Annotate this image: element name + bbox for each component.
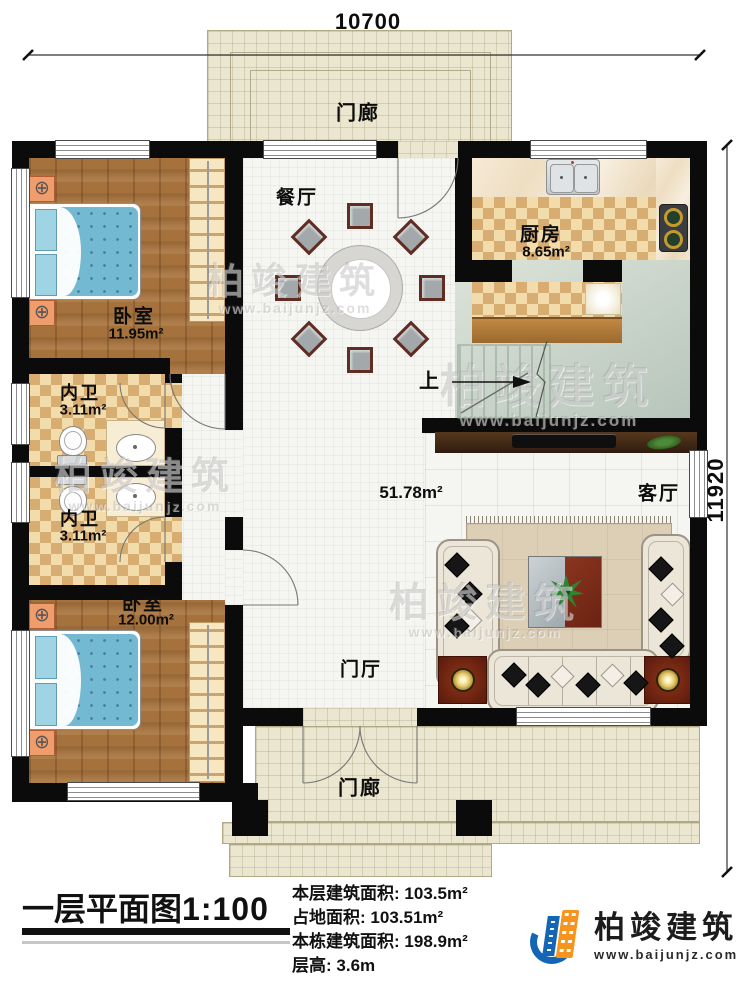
page-title-scale: 1:100: [182, 891, 269, 927]
nightstand-lamp-icon: ⊕: [29, 300, 55, 326]
door-opening: [398, 141, 458, 158]
porch-bottom-step2: [229, 844, 492, 877]
label-dining: 餐厅: [276, 183, 318, 210]
watermark: 柏竣建筑 www.baijunjz.com: [398, 362, 698, 430]
label-bedroom1-area: 11.95m²: [108, 326, 163, 343]
tv-cabinet-icon: [435, 432, 697, 453]
label-stairs-up: 上: [419, 365, 441, 394]
title-underline-thin: [22, 941, 290, 944]
window-icon: [530, 140, 647, 159]
dimension-right: 11920: [703, 458, 729, 523]
window-icon: [11, 168, 30, 298]
nightstand-lamp-icon: ⊕: [29, 603, 55, 629]
wall-wing-vertical: [225, 605, 243, 802]
stat-line: 占地面积: 103.51m²: [292, 906, 468, 930]
footer: 一层平面图1:100 本层建筑面积: 103.5m² 占地面积: 103.51m…: [0, 878, 750, 983]
door-opening: [303, 708, 417, 726]
nightstand-lamp-icon: ⊕: [29, 176, 55, 202]
wall-kitchen-bottom: [583, 260, 622, 282]
brand-logo: 柏竣建筑 www.baijunjz.com: [532, 908, 738, 966]
dining-chair-icon: [347, 347, 373, 373]
label-open-area: 51.78m²: [379, 483, 442, 503]
wall-bath-right: [165, 374, 182, 383]
page-title: 一层平面图1:100: [22, 884, 269, 930]
window-icon: [11, 383, 30, 445]
dining-chair-icon: [347, 203, 373, 229]
tv-icon: [512, 434, 616, 448]
porch-column-left: [232, 800, 268, 836]
window-icon: [55, 140, 150, 159]
stat-line: 层高: 3.6m: [292, 954, 468, 978]
bed-icon: [29, 630, 141, 730]
window-icon: [67, 782, 200, 801]
floor-plan-page: ⊕ ⊕ ⊕ ⊕: [0, 0, 750, 983]
label-bath1-area: 3.11m²: [60, 402, 107, 419]
end-table-lamp-icon: [644, 656, 692, 704]
kitchen-sink-icon: [546, 159, 600, 195]
wall-wing-vertical: [225, 517, 243, 550]
stats-block: 本层建筑面积: 103.5m² 占地面积: 103.51m² 本栋建筑面积: 1…: [292, 882, 468, 978]
label-bath2-area: 3.11m²: [60, 528, 107, 545]
label-kitchen: 厨房: [520, 220, 562, 247]
stat-line: 本层建筑面积: 103.5m²: [292, 882, 468, 906]
label-bedroom1: 卧室: [113, 302, 155, 329]
kitchen-nook-counter: [472, 317, 622, 343]
title-underline-thick: [22, 928, 290, 935]
page-title-text: 一层平面图: [22, 891, 182, 927]
brand-logo-icon: [532, 908, 586, 966]
fridge-icon: [585, 283, 621, 315]
door-opening: [225, 550, 243, 605]
wall-bedroom1-bottom: [12, 358, 170, 374]
nightstand-lamp-icon: ⊕: [29, 730, 55, 756]
watermark: 柏竣建筑 www.baijunjz.com: [185, 262, 405, 316]
window-icon: [11, 630, 30, 757]
watermark: 柏竣建筑 www.baijunjz.com: [350, 582, 620, 640]
stove-icon: [659, 204, 688, 252]
label-living: 客厅: [638, 479, 680, 506]
stat-line: 本栋建筑面积: 198.9m²: [292, 930, 468, 954]
label-porch-bottom: 门廊: [338, 772, 382, 801]
brand-site: www.baijunjz.com: [594, 947, 738, 962]
dining-chair-icon: [419, 275, 445, 301]
label-kitchen-area: 8.65m²: [522, 244, 570, 261]
label-bedroom2-area: 12.00m²: [118, 612, 174, 629]
window-icon: [263, 140, 377, 159]
dimension-top: 10700: [335, 9, 401, 35]
bed-icon: [29, 203, 141, 300]
label-porch-top: 门廊: [336, 97, 380, 126]
brand-name: 柏竣建筑: [594, 912, 738, 945]
porch-column-right: [456, 800, 492, 836]
label-foyer: 门厅: [340, 655, 382, 682]
end-table-lamp-icon: [438, 656, 487, 704]
wall-kitchen-bottom: [455, 260, 512, 282]
plant-decor-icon: [646, 434, 681, 452]
window-icon: [516, 707, 651, 726]
wardrobe-icon: [189, 622, 225, 782]
rug-fringe: [466, 516, 672, 523]
